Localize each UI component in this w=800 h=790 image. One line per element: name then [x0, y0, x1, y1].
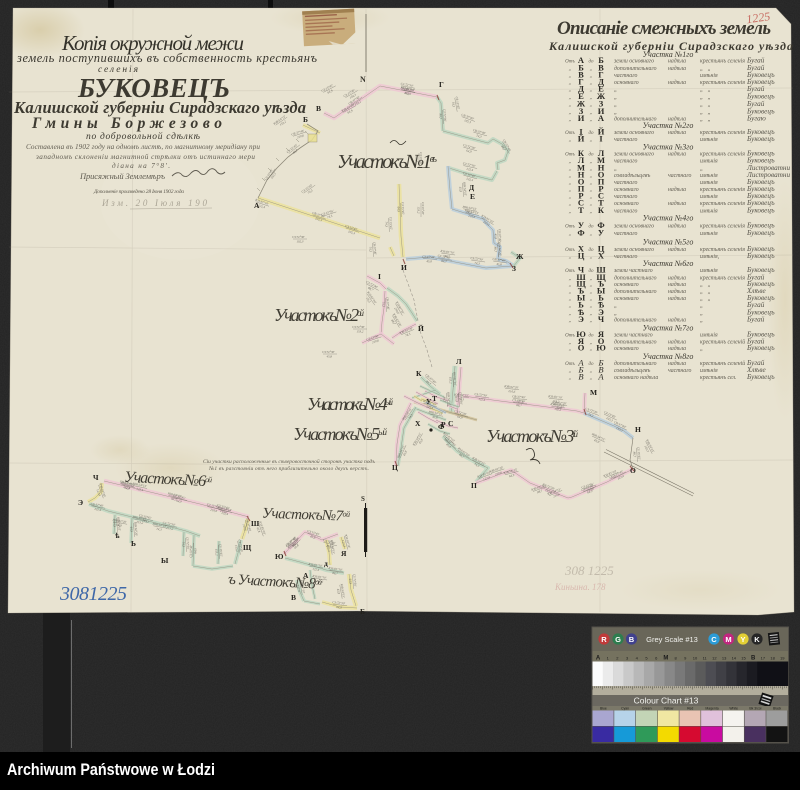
- svg-text:„: „: [590, 283, 593, 288]
- svg-text:Э: Э: [578, 314, 584, 324]
- svg-text:Присяжный Землемѣръ: Присяжный Землемѣръ: [79, 171, 166, 181]
- svg-text:СЗ:72°30': СЗ:72°30': [322, 350, 335, 354]
- svg-text:„: „: [569, 297, 572, 302]
- svg-text:Х: Х: [415, 419, 421, 428]
- svg-text:земли основнаго: земли основнаго: [613, 247, 654, 253]
- svg-text:совладѣльцевъ: совладѣльцевъ: [614, 172, 650, 179]
- svg-text:Участокъ№7ой: Участокъ№7ой: [262, 506, 351, 525]
- svg-text:земли основнаго: земли основнаго: [613, 224, 654, 230]
- svg-text:частнаго: частнаго: [614, 73, 637, 79]
- svg-text:„: „: [569, 319, 572, 324]
- svg-text:S: S: [361, 495, 365, 503]
- svg-text:крестьянъ селенія: крестьянъ селенія: [700, 59, 745, 65]
- svg-text:„: „: [614, 94, 617, 100]
- svg-text:надѣла: надѣла: [668, 275, 686, 282]
- svg-text:Й: Й: [418, 324, 424, 333]
- svg-text:Ж: Ж: [516, 252, 524, 261]
- svg-text:A: A: [596, 656, 601, 662]
- svg-text:Grey Scale #13: Grey Scale #13: [646, 635, 698, 644]
- svg-text:земли частнаго: земли частнаго: [613, 268, 653, 274]
- svg-text:Участка №5го: Участка №5го: [643, 238, 694, 247]
- svg-text:„: „: [590, 304, 593, 309]
- svg-text:дополнительнаго: дополнительнаго: [614, 65, 657, 72]
- svg-text:надѣла: надѣла: [668, 65, 686, 72]
- svg-text:Участка №8го: Участка №8го: [643, 352, 694, 361]
- svg-text:до: до: [588, 225, 594, 230]
- svg-text:Гмины Боржезово: Гмины Боржезово: [31, 115, 222, 132]
- svg-text:„ „: „ „: [700, 289, 711, 295]
- svg-text:Б: Б: [360, 607, 365, 616]
- svg-text:имѣнія: имѣнія: [700, 137, 718, 143]
- svg-text:Ч: Ч: [93, 473, 99, 482]
- svg-text:„: „: [590, 167, 593, 172]
- svg-text:„: „: [590, 341, 593, 346]
- svg-text:„: „: [569, 118, 572, 123]
- svg-text:17: 17: [761, 656, 766, 661]
- svg-text:„: „: [569, 341, 572, 346]
- svg-text:К: К: [416, 369, 422, 378]
- svg-text:до: до: [588, 362, 594, 367]
- svg-text:частнаго: частнаго: [614, 231, 637, 237]
- svg-text:Бугаю: Бугаю: [746, 115, 766, 123]
- svg-text:дополнительнаго: дополнительнаго: [614, 339, 657, 346]
- svg-text:10: 10: [693, 656, 698, 661]
- svg-text:„: „: [590, 103, 593, 108]
- svg-text:Ы: Ы: [161, 556, 169, 565]
- svg-text:дополнительнаго: дополнительнаго: [614, 288, 657, 295]
- svg-text:„: „: [590, 202, 593, 207]
- svg-text:земли частнаго: земли частнаго: [613, 333, 653, 339]
- svg-text:по добровольной сдѣлкѣ: по добровольной сдѣлкѣ: [86, 131, 201, 142]
- svg-text:Отъ: Отъ: [565, 153, 575, 158]
- svg-text:Т: Т: [578, 205, 584, 215]
- svg-text:Black: Black: [773, 707, 782, 711]
- svg-text:Участка №4го: Участка №4го: [643, 214, 694, 223]
- svg-text:„: „: [614, 303, 617, 309]
- svg-text:„: „: [700, 166, 703, 172]
- svg-text:Д: Д: [469, 183, 475, 192]
- svg-text:„: „: [614, 311, 617, 317]
- svg-text:„: „: [614, 102, 617, 108]
- svg-text:Х: Х: [598, 251, 605, 261]
- svg-text:Отъ: Отъ: [565, 131, 575, 136]
- svg-text:В: В: [316, 104, 321, 113]
- svg-text:„ „: „ „: [700, 102, 711, 108]
- svg-text:„: „: [569, 304, 572, 309]
- svg-text:имѣнія: имѣнія: [700, 159, 718, 165]
- svg-text:„: „: [590, 297, 593, 302]
- svg-text:„: „: [569, 74, 572, 79]
- svg-text:имѣнія: имѣнія: [700, 180, 718, 186]
- svg-text:„: „: [569, 202, 572, 207]
- svg-text:частнаго: частнаго: [614, 159, 637, 165]
- svg-text:Участка №2го: Участка №2го: [643, 121, 694, 130]
- svg-text:„: „: [590, 174, 593, 179]
- svg-text:„: „: [614, 109, 617, 115]
- svg-text:до: до: [588, 269, 594, 274]
- svg-text:14: 14: [732, 656, 737, 661]
- svg-text:„ „: „ „: [700, 87, 711, 93]
- svg-text:„: „: [590, 110, 593, 115]
- svg-text:А: А: [597, 372, 604, 382]
- svg-text:имѣнія: имѣнія: [700, 268, 718, 274]
- svg-text:3081225: 3081225: [59, 583, 127, 605]
- svg-text:Участокъ№5ый: Участокъ№5ый: [293, 424, 388, 444]
- svg-text:Участка №3го: Участка №3го: [643, 143, 694, 152]
- svg-text:„: „: [590, 181, 593, 186]
- svg-text:надѣла: надѣла: [668, 129, 686, 136]
- svg-text:„: „: [569, 255, 572, 260]
- svg-text:Отъ: Отъ: [565, 269, 575, 274]
- svg-text:частнаго: частнаго: [614, 137, 637, 143]
- svg-text:П: П: [471, 481, 477, 490]
- svg-text:крестьянъ селенія: крестьянъ селенія: [700, 187, 745, 193]
- svg-text:„: „: [700, 311, 703, 317]
- svg-text:13: 13: [722, 656, 727, 661]
- svg-text:Yellow: Yellow: [664, 707, 674, 711]
- svg-text:основнаго надѣла: основнаго надѣла: [614, 374, 658, 381]
- svg-text:„: „: [590, 95, 593, 100]
- svg-text:M: M: [663, 656, 668, 662]
- svg-text:до: до: [588, 60, 594, 65]
- svg-text:СЗ:72°30': СЗ:72°30': [352, 325, 365, 329]
- svg-text:имѣнія: имѣнія: [700, 368, 718, 374]
- svg-text:крестьянъ сел.: крестьянъ сел.: [700, 375, 736, 381]
- svg-text:Буковецъ: Буковецъ: [746, 373, 775, 381]
- svg-text:„: „: [569, 174, 572, 179]
- svg-text:Киньина. 178: Киньина. 178: [554, 582, 606, 592]
- svg-text:частнаго: частнаго: [668, 368, 691, 374]
- svg-text:Составлена въ 1902 году на одн: Составлена въ 1902 году на одномъ листѣ,…: [26, 143, 260, 151]
- svg-text:Ф: Ф: [577, 228, 584, 238]
- svg-text:имѣнія: имѣнія: [700, 173, 718, 179]
- svg-text:„: „: [569, 110, 572, 115]
- svg-text:частнаго: частнаго: [614, 194, 637, 200]
- svg-text:Archiwum Państwowe w Łodzi: Archiwum Państwowe w Łodzi: [7, 761, 215, 779]
- svg-text:„: „: [569, 210, 572, 215]
- svg-text:Б: Б: [303, 115, 308, 124]
- svg-text:Буковецъ: Буковецъ: [746, 229, 775, 237]
- svg-text:Green: Green: [642, 707, 652, 711]
- svg-text:Сіи участки расположенные въ с: Сіи участки расположенные въ сѣверовосто…: [203, 458, 375, 465]
- svg-text:Y: Y: [740, 635, 745, 644]
- svg-text:B: B: [751, 656, 756, 662]
- svg-text:Буковецъ: Буковецъ: [746, 344, 775, 352]
- svg-text:надѣла: надѣла: [668, 246, 686, 253]
- svg-text:дополнительнаго: дополнительнаго: [614, 360, 657, 367]
- svg-text:надѣла: надѣла: [668, 317, 686, 324]
- svg-text:„: „: [569, 283, 572, 288]
- svg-text:Ц: Ц: [392, 463, 398, 472]
- svg-text:Л: Л: [456, 357, 462, 366]
- svg-text:G: G: [615, 635, 621, 644]
- svg-text:основнаго: основнаго: [614, 201, 639, 207]
- svg-text:Р: Р: [441, 420, 446, 429]
- svg-text:В: В: [291, 593, 296, 602]
- svg-text:К: К: [598, 205, 605, 215]
- svg-text:Буковецъ: Буковецъ: [746, 135, 775, 143]
- svg-text:земли основнаго: земли основнаго: [613, 152, 654, 158]
- svg-text:М: М: [590, 388, 597, 397]
- svg-text:„: „: [590, 369, 593, 374]
- svg-text:R: R: [601, 635, 607, 644]
- svg-text:имѣнія,: имѣнія,: [700, 254, 720, 260]
- svg-text:„: „: [590, 376, 593, 381]
- svg-text:„: „: [569, 312, 572, 317]
- svg-text:крестьянъ селенія: крестьянъ селенія: [700, 201, 745, 207]
- svg-text:„: „: [590, 195, 593, 200]
- svg-text:Отъ: Отъ: [565, 362, 575, 367]
- svg-text:Участокъ№2ой: Участокъ№2ой: [274, 305, 365, 325]
- svg-text:І: І: [378, 272, 381, 281]
- svg-text:№1 въ разстояніи отъ него приб: №1 въ разстояніи отъ него приблизительно…: [208, 465, 369, 472]
- svg-text:надѣла: надѣла: [668, 223, 686, 230]
- svg-text:„ „: „ „: [700, 282, 711, 288]
- svg-text:И: И: [578, 113, 585, 123]
- svg-text:„: „: [569, 376, 572, 381]
- svg-text:„ „: „ „: [700, 117, 711, 123]
- svg-text:Отъ: Отъ: [565, 60, 575, 65]
- svg-text:„: „: [590, 319, 593, 324]
- svg-text:Э: Э: [78, 498, 83, 507]
- svg-text:западномъ склоненіи магнитной: западномъ склоненіи магнитной стрѣлки от…: [35, 153, 255, 161]
- svg-text:„: „: [700, 303, 703, 309]
- svg-text:Участокъ№3ій: Участокъ№3ій: [486, 426, 579, 446]
- svg-text:Буковецъ: Буковецъ: [746, 207, 775, 215]
- svg-text:Й: Й: [578, 134, 585, 144]
- svg-text:крестьянъ селенія: крестьянъ селенія: [700, 224, 745, 230]
- svg-text:Е: Е: [470, 192, 475, 201]
- svg-text:Ч: Ч: [598, 314, 605, 324]
- svg-text:З: З: [512, 264, 516, 273]
- svg-text:„: „: [590, 118, 593, 123]
- svg-text:„: „: [569, 103, 572, 108]
- svg-text:надѣла: надѣла: [668, 295, 686, 302]
- svg-text:„: „: [569, 290, 572, 295]
- svg-text:„: „: [569, 81, 572, 86]
- svg-text:совладѣльцевъ: совладѣльцевъ: [614, 367, 650, 374]
- svg-text:N: N: [360, 75, 366, 84]
- svg-text:„: „: [569, 67, 572, 72]
- svg-text:Magenta: Magenta: [705, 707, 718, 711]
- svg-text:12: 12: [712, 656, 717, 661]
- svg-text:ѣ: ѣ: [115, 531, 120, 540]
- svg-text:„: „: [569, 167, 572, 172]
- svg-text:діана на 7°8'.: діана на 7°8'.: [112, 162, 170, 170]
- svg-text:15: 15: [741, 656, 746, 661]
- svg-text:„: „: [569, 188, 572, 193]
- svg-text:„: „: [614, 87, 617, 93]
- svg-text:надѣла: надѣла: [668, 200, 686, 207]
- svg-text:„: „: [569, 195, 572, 200]
- svg-text:основнаго: основнаго: [614, 282, 639, 288]
- svg-text:А: А: [598, 113, 605, 123]
- svg-text:„: „: [569, 181, 572, 186]
- svg-text:Участокъ№4ый: Участокъ№4ый: [307, 394, 394, 414]
- svg-text:„ „: „ „: [700, 109, 711, 115]
- svg-text:„: „: [590, 160, 593, 165]
- svg-text:надѣла: надѣла: [668, 186, 686, 193]
- svg-text:„: „: [700, 346, 703, 352]
- svg-text:Участка №7го: Участка №7го: [643, 324, 694, 333]
- svg-text:надѣла: надѣла: [668, 58, 686, 65]
- svg-text:Отъ: Отъ: [565, 334, 575, 339]
- svg-text:K: K: [754, 635, 760, 644]
- svg-text:Colour Chart #13: Colour Chart #13: [634, 696, 699, 706]
- svg-text:земли основнаго: земли основнаго: [613, 130, 654, 136]
- svg-text:надѣла: надѣла: [668, 339, 686, 346]
- svg-text:имѣнія: имѣнія: [700, 231, 718, 237]
- svg-text:„ „: „ „: [700, 296, 711, 302]
- svg-text:д: д: [324, 559, 328, 568]
- svg-text:Cyan: Cyan: [621, 707, 629, 711]
- svg-text:19: 19: [780, 656, 785, 661]
- svg-text:Изм. 20 Іюля 190: Изм. 20 Іюля 190: [101, 198, 208, 208]
- svg-text:„: „: [590, 232, 593, 237]
- svg-text:B: B: [629, 635, 635, 644]
- svg-text:земель поступившихъ въ собстве: земель поступившихъ въ собственность кре…: [16, 51, 318, 65]
- svg-text:Дополненіе произведено 28 Іюня: Дополненіе произведено 28 Іюня 1902 года: [93, 188, 184, 195]
- svg-text:дополнительнаго: дополнительнаго: [614, 317, 657, 324]
- svg-text:Участка №6го: Участка №6го: [643, 259, 694, 268]
- svg-text:У: У: [598, 228, 605, 238]
- svg-text:надѣла: надѣла: [668, 79, 686, 86]
- svg-text:крестьянъ селенія: крестьянъ селенія: [700, 130, 745, 136]
- svg-text:„: „: [590, 255, 593, 260]
- svg-text:„: „: [590, 67, 593, 72]
- svg-text:18: 18: [770, 656, 775, 661]
- svg-text:„: „: [569, 277, 572, 282]
- svg-text:„: „: [590, 290, 593, 295]
- svg-text:дополнительнаго: дополнительнаго: [614, 275, 657, 282]
- svg-text:надѣла: надѣла: [668, 360, 686, 367]
- svg-text:частнаго: частнаго: [614, 209, 637, 215]
- svg-text:„: „: [590, 347, 593, 352]
- svg-text:„: „: [569, 88, 572, 93]
- svg-text:И: И: [401, 263, 407, 272]
- svg-text:частнаго: частнаго: [614, 254, 637, 260]
- svg-text:„: „: [590, 74, 593, 79]
- svg-text:308 1225: 308 1225: [564, 563, 614, 578]
- svg-text:до: до: [588, 131, 594, 136]
- svg-text:Ю: Ю: [596, 343, 606, 353]
- svg-text:„: „: [569, 232, 572, 237]
- svg-text:Red: Red: [687, 707, 693, 711]
- svg-text:Blue: Blue: [600, 707, 607, 711]
- svg-text:основнаго: основнаго: [614, 346, 639, 352]
- svg-text:C: C: [711, 635, 717, 644]
- svg-text:„ „: „ „: [700, 66, 711, 72]
- svg-text:крестьянъ селенія: крестьянъ селенія: [700, 80, 745, 86]
- svg-text:до: до: [588, 334, 594, 339]
- svg-text:„: „: [569, 369, 572, 374]
- svg-text:„: „: [590, 210, 593, 215]
- svg-text:СЗ:72°30': СЗ:72°30': [292, 235, 305, 239]
- svg-text:Ю: Ю: [275, 552, 284, 561]
- svg-text:В: В: [578, 372, 583, 382]
- svg-text:основнаго: основнаго: [614, 80, 639, 86]
- svg-text:крестьянъ селенія: крестьянъ селенія: [700, 247, 745, 253]
- svg-text:Г: Г: [439, 80, 444, 89]
- svg-text:надѣла: надѣла: [668, 345, 686, 352]
- svg-text:надѣла: надѣла: [668, 288, 686, 295]
- svg-text:крестьянъ селеній: крестьянъ селеній: [700, 339, 745, 346]
- svg-text:до: до: [588, 153, 594, 158]
- svg-text:крестьянъ селенія: крестьянъ селенія: [700, 276, 745, 282]
- svg-text:частнаго: частнаго: [668, 173, 691, 179]
- svg-text:Бугай: Бугай: [746, 316, 765, 324]
- svg-text:„: „: [569, 95, 572, 100]
- svg-text:„: „: [569, 138, 572, 143]
- svg-text:надѣла: надѣла: [668, 281, 686, 288]
- svg-text:крестьянъ селенія: крестьянъ селенія: [700, 152, 745, 158]
- svg-text:Отъ: Отъ: [565, 225, 575, 230]
- svg-text:имѣнія: имѣнія: [700, 209, 718, 215]
- svg-text:основнаго: основнаго: [614, 296, 639, 302]
- svg-text:имѣнія: имѣнія: [700, 194, 718, 200]
- svg-text:основнаго: основнаго: [614, 187, 639, 193]
- svg-text:White: White: [729, 707, 738, 711]
- svg-text:Н: Н: [635, 425, 641, 434]
- svg-text:Ц: Ц: [578, 251, 585, 261]
- svg-text:частнаго: частнаго: [614, 180, 637, 186]
- svg-text:СЗ:15°45': СЗ:15°45': [421, 202, 425, 215]
- svg-text:земли основнаго: земли основнаго: [613, 59, 654, 65]
- svg-text:имѣнія: имѣнія: [700, 333, 718, 339]
- svg-text:крестьянъ селеній: крестьянъ селеній: [700, 360, 745, 367]
- svg-text:„: „: [569, 347, 572, 352]
- svg-text:Ь: Ь: [131, 539, 136, 548]
- svg-text:„: „: [569, 160, 572, 165]
- svg-text:Bk 3/col: Bk 3/col: [749, 707, 761, 711]
- svg-text:Я: Я: [341, 549, 347, 558]
- svg-text:M: M: [725, 635, 731, 644]
- svg-text:Буковецъ: Буковецъ: [746, 252, 775, 260]
- svg-text:„: „: [590, 188, 593, 193]
- svg-text:„: „: [614, 166, 617, 172]
- svg-text:имѣнія: имѣнія: [700, 73, 718, 79]
- svg-text:надѣла: надѣла: [668, 151, 686, 158]
- svg-text:„: „: [700, 318, 703, 324]
- svg-text:СЗ:15°45': СЗ:15°45': [419, 152, 423, 165]
- svg-text:„: „: [590, 88, 593, 93]
- svg-text:„: „: [590, 312, 593, 317]
- svg-text:Описаніе смежныхъ земель: Описаніе смежныхъ земель: [557, 18, 771, 39]
- svg-text:„: „: [590, 277, 593, 282]
- svg-text:до: до: [588, 248, 594, 253]
- svg-text:О: О: [578, 343, 585, 353]
- svg-text:„: „: [590, 138, 593, 143]
- svg-text:С: С: [448, 419, 453, 428]
- svg-text:„: „: [590, 81, 593, 86]
- svg-text:Отъ: Отъ: [565, 248, 575, 253]
- svg-text:Буковецъ: Буковецъ: [746, 92, 775, 100]
- svg-text:„ „: „ „: [700, 94, 711, 100]
